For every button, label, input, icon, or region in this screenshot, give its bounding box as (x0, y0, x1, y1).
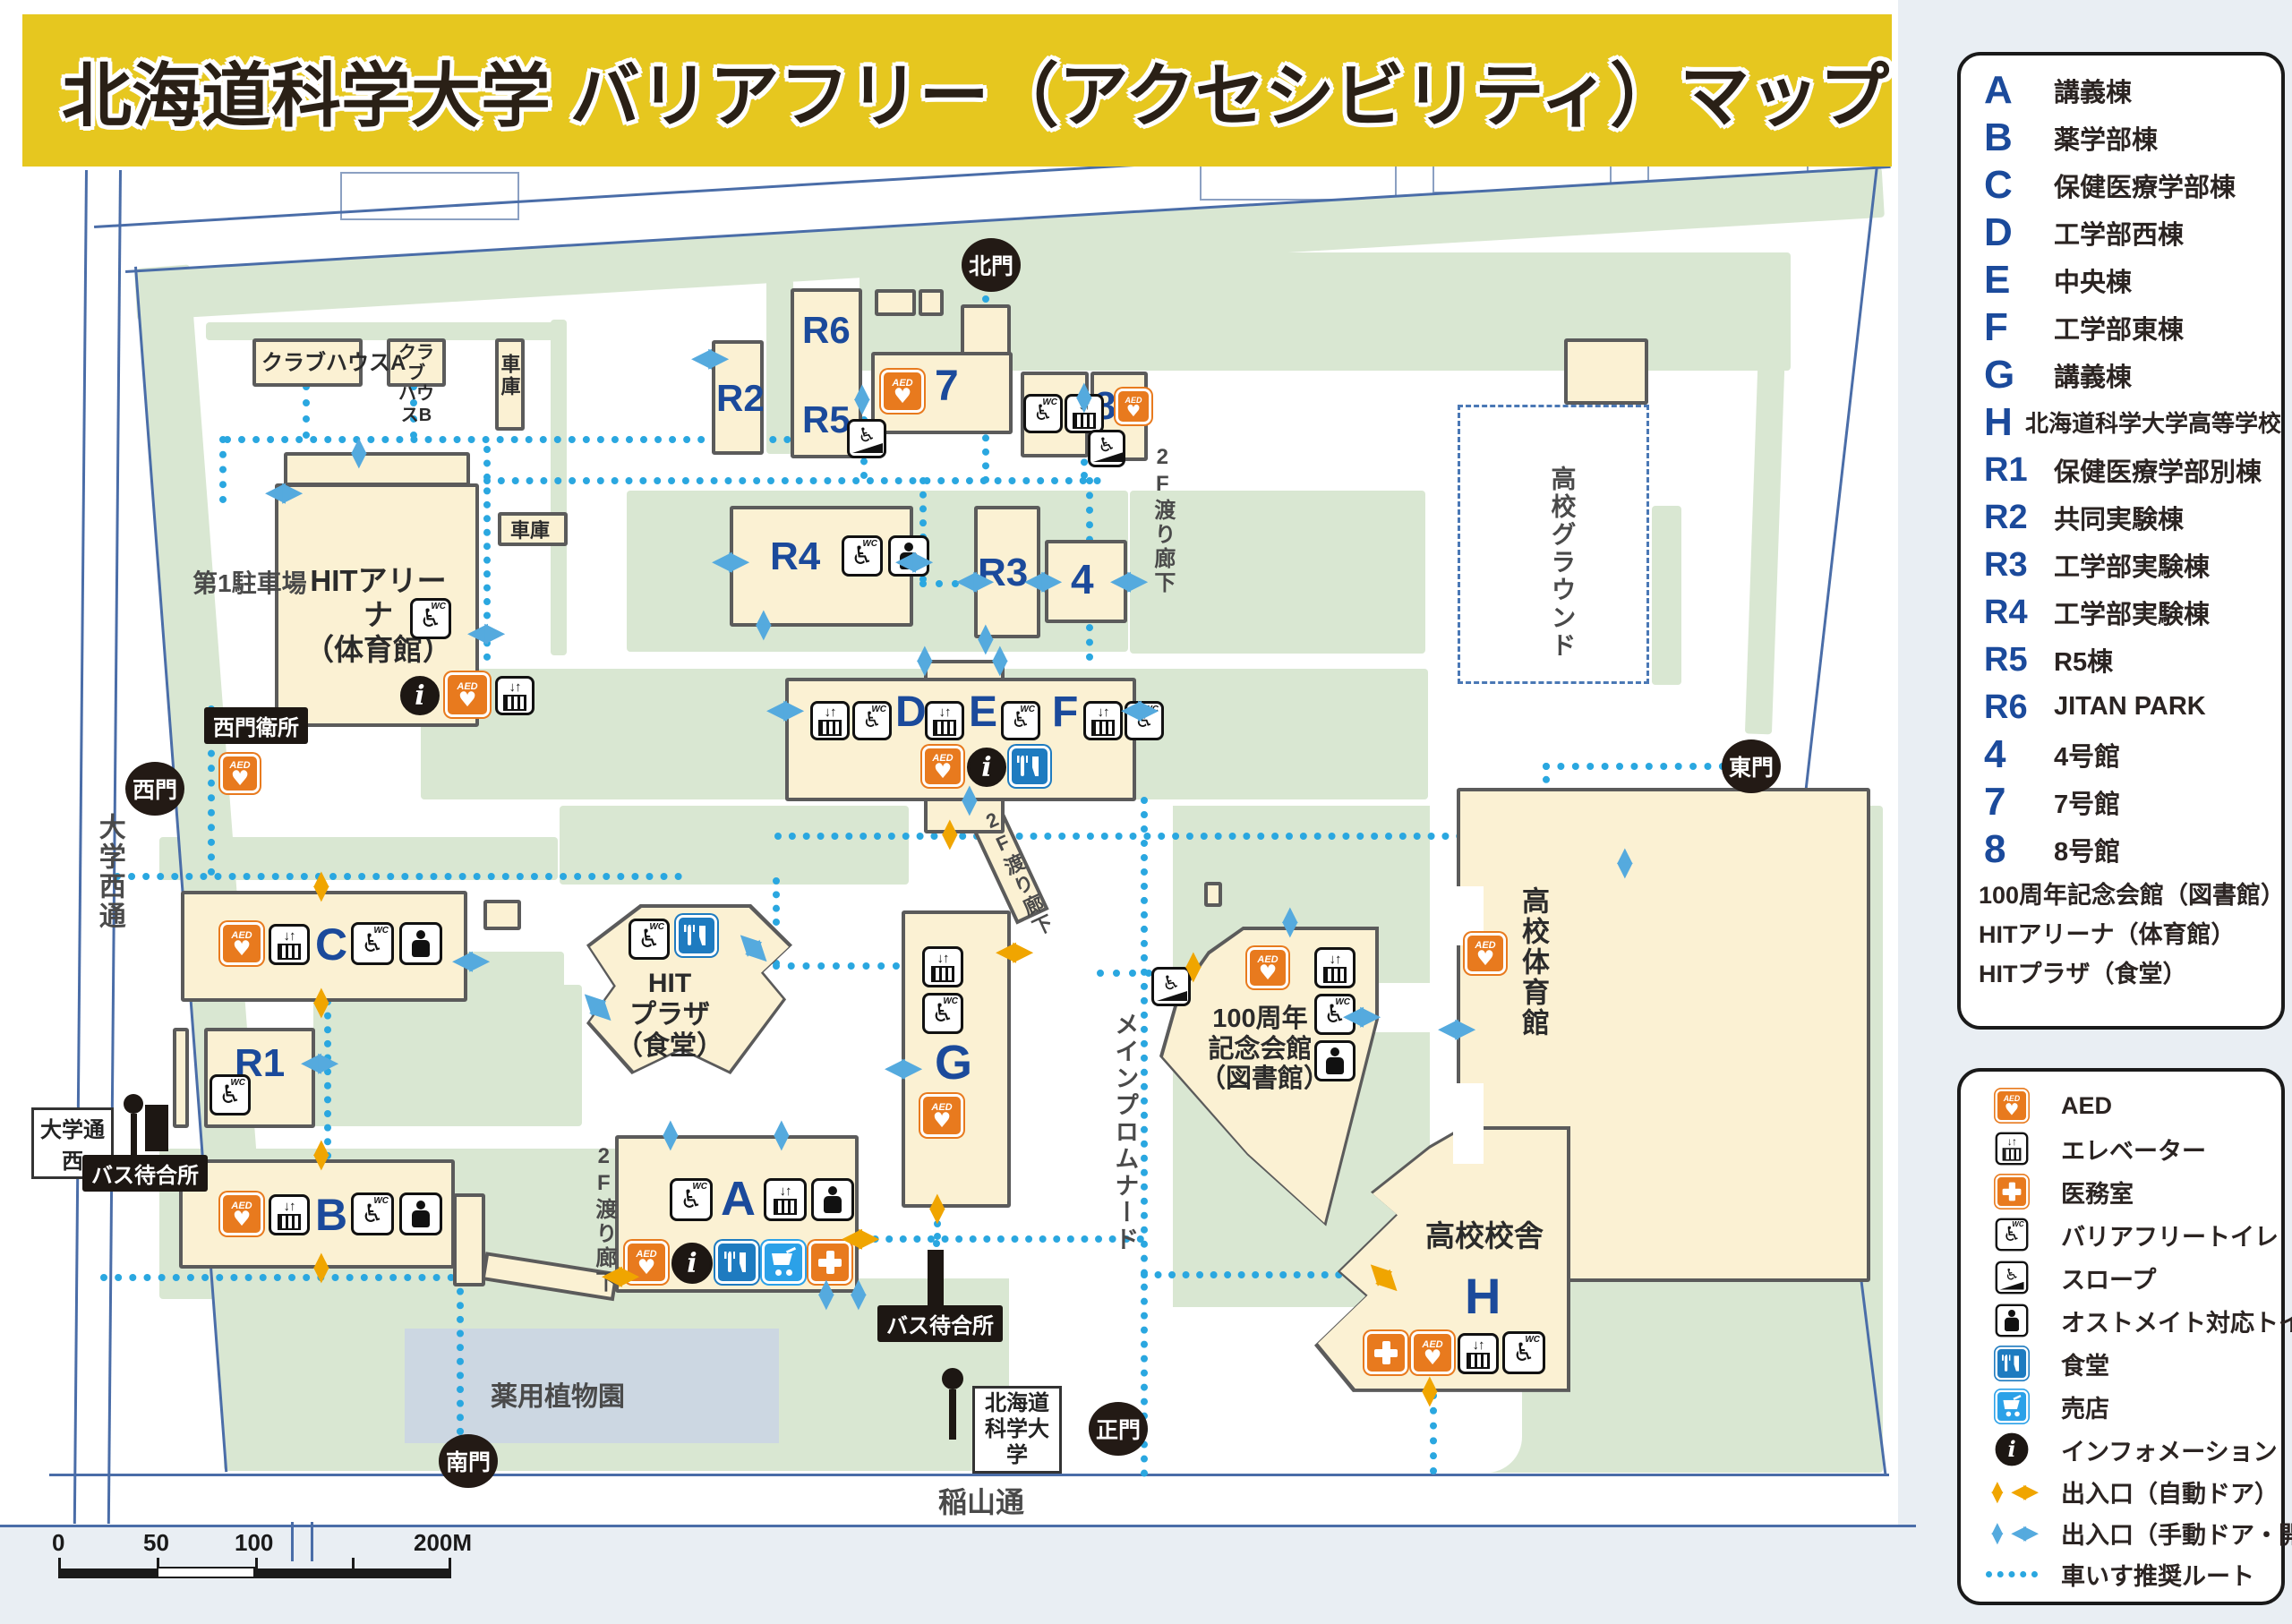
west-road-outer-line (73, 170, 88, 1524)
legend-row: 100周年記念会館（図書館） (1961, 873, 2281, 912)
legend-label: 北海道科学大学高等学校 (2025, 406, 2281, 439)
centennial-line3: （図書館） (1200, 1064, 1330, 1093)
lawn (766, 279, 793, 454)
bus-shelter-tag-west: バス待合所 (82, 1155, 208, 1192)
outside-street-line (291, 1522, 294, 1561)
south-road-top-line (49, 1474, 1889, 1476)
hs-gym-notch (1453, 1083, 1484, 1164)
aed-icon: AED♥ (220, 754, 260, 793)
scale-segment (58, 1568, 157, 1578)
centennial-line1: 100周年 (1212, 1004, 1307, 1033)
entrance-manual: ◀▶ (1438, 1015, 1472, 1042)
accessible-toilet-icon: ♿WC (210, 1074, 251, 1115)
legend-row: B薬学部棟 (1961, 114, 2281, 161)
lawn (313, 985, 582, 1126)
building-g-label: G (935, 1039, 972, 1087)
aed-icon: AED♥ (1996, 1090, 2029, 1123)
building-small (919, 289, 944, 316)
legend-label: 100周年記念会館（図書館） (1979, 876, 2285, 910)
building-small (875, 289, 916, 316)
legend-code: R5 (1984, 643, 2054, 677)
entrance-manual: ◀▶ (712, 548, 746, 575)
legend-row: D工学部西棟 (1961, 209, 2281, 256)
legend-label: 中央棟 (2054, 261, 2132, 299)
entrance-auto: ◀▶ (602, 1262, 636, 1289)
accessible-toilet-icon: ♿WC (1502, 1331, 1545, 1374)
legend-code: G (1984, 355, 2054, 395)
bus-sign-line2: 科学大学 (985, 1417, 1049, 1467)
ostomate-icon (399, 922, 442, 965)
legend-row: R4工学部実験棟 (1961, 588, 2281, 636)
elevator-icon: ↓↑ (764, 1178, 807, 1221)
garage-1-label: 車庫 (498, 354, 521, 398)
legend-row: ▲▼ ◀▶出入口（自動ドア） (1961, 1471, 2281, 1512)
entrance-manual: ▲▼ (911, 646, 938, 674)
legend-label: 売店 (2061, 1389, 2109, 1424)
scale-100: 100 (235, 1529, 273, 1557)
centennial-line2: 記念会館 (1208, 1035, 1312, 1064)
aed-icon: AED♥ (445, 672, 490, 717)
information-icon: i (671, 1243, 713, 1284)
east-road-line-1 (1802, 166, 1878, 810)
legend-row: R5R5棟 (1961, 636, 2281, 683)
entrance-manual: ◀▶ (452, 947, 486, 974)
building-r6-label: R6 (802, 312, 851, 349)
cafeteria-icon (715, 1241, 758, 1284)
gate-south: 南門 (439, 1434, 498, 1488)
outside-block (340, 172, 519, 220)
building-b-wing (453, 1193, 485, 1286)
legend-label: 保健医療学部棟 (2054, 167, 2236, 204)
legend-row: 44号館 (1961, 731, 2281, 778)
entrance-manual: ◀▶ (1024, 568, 1058, 594)
entrance-manual: ◀▶ (301, 1049, 335, 1076)
elevator-icon: ↓↑ (269, 924, 310, 965)
elevator-icon: ↓↑ (269, 1194, 310, 1235)
building-h-label: H (1465, 1271, 1501, 1321)
wheelchair-route (303, 383, 310, 439)
corridor-2f-label: 2F渡り廊下 (1150, 445, 1175, 595)
wheelchair-route (114, 873, 682, 880)
scale-segment (255, 1568, 451, 1578)
legend-code: H (1984, 403, 2025, 442)
aed-icon: AED♥ (1116, 389, 1151, 424)
legend-row: A講義棟 (1961, 66, 2281, 114)
bus-stop-main-sign: 北海道科学大学 (972, 1386, 1062, 1474)
entrance-manual: ◀▶ (1110, 568, 1144, 594)
entrance-manual: ◀▶ (691, 345, 725, 372)
legend-label: HITアリーナ（体育館） (1979, 915, 2236, 950)
legend-row: E中央棟 (1961, 256, 2281, 303)
legend-label: 薬学部棟 (2054, 119, 2158, 157)
univ-west-st-label: 大学西通 (93, 813, 124, 931)
elevator-icon: ↓↑ (1314, 947, 1356, 988)
accessible-toilet-icon: ♿WC (842, 535, 883, 577)
legend-row: AED♥AED (1961, 1084, 2281, 1127)
legend-label: 4号館 (2054, 736, 2120, 774)
aed-icon: AED♥ (881, 370, 924, 413)
wheelchair-route-icon (1980, 1571, 2043, 1577)
bus-stop-pole (949, 1389, 956, 1440)
legend-code: R4 (1984, 595, 2054, 629)
shop-icon (762, 1241, 805, 1284)
scale-segment (157, 1567, 255, 1578)
legend-label: スロープ (2061, 1261, 2156, 1295)
cafeteria-icon (1996, 1347, 2029, 1380)
elevator-icon: ↓↑ (1996, 1133, 2029, 1166)
legend-row: 77号館 (1961, 778, 2281, 825)
promenade-label: メインプロムナード (1110, 1012, 1138, 1253)
legend-label: 講義棟 (2054, 72, 2132, 109)
entrance-manual-icon: ▲▼ ◀▶ (1980, 1521, 2043, 1544)
entrance-manual: ▲▼ (956, 786, 983, 814)
aed-icon: AED♥ (1465, 933, 1506, 974)
entrance-manual: ▲▼ (346, 439, 372, 466)
scale-200: 200M (414, 1529, 472, 1557)
entrance-manual: ◀▶ (265, 479, 299, 506)
lawn (551, 320, 567, 655)
entrance-manual: ▲▼ (845, 1280, 872, 1308)
legend-label: AED (2061, 1092, 2112, 1120)
aed-icon: AED♥ (920, 1094, 963, 1137)
legend-row: 食堂 (1961, 1342, 2281, 1385)
legend-label: JITAN PARK (2054, 692, 2206, 722)
building-c-label: C (315, 922, 347, 967)
west-gate-office-tag: 西門衛所 (204, 707, 308, 744)
building-r4-label: R4 (770, 537, 820, 577)
elevator-icon: ↓↑ (1083, 701, 1123, 740)
legend-code: R3 (1984, 548, 2054, 582)
title-banner: 北海道科学大学 バリアフリー（アクセシビリティ）マップ (22, 14, 1892, 167)
elevator-icon: ↓↑ (925, 701, 964, 740)
clubhouse-b-label: クラブハウスB (392, 343, 440, 426)
elevator-icon: ↓↑ (922, 946, 963, 987)
entrance-auto-icon: ▲▼ ◀▶ (1980, 1480, 2043, 1503)
entrance-manual: ◀▶ (1121, 697, 1155, 723)
clubhouse-a-label: クラブハウスA (261, 351, 406, 376)
entrance-auto: ▲▼ (308, 1141, 335, 1168)
legend-row: 売店 (1961, 1385, 2281, 1428)
entrance-manual: ◀▶ (467, 620, 501, 646)
entrance-auto: ▲▼ (936, 820, 963, 848)
facility-legend-panel: AED♥AED ↓↑エレベーター 医務室 ♿WCバリアフリートイレ ♿スロープ … (1957, 1068, 2285, 1605)
legend-row: iインフォメーション (1961, 1428, 2281, 1471)
accessible-toilet-icon: ♿WC (351, 922, 394, 965)
hit-plaza-line3: （食堂） (616, 1031, 723, 1061)
entrance-manual: ◀▶ (1343, 1003, 1377, 1030)
legend-row: 88号館 (1961, 825, 2281, 873)
entrance-manual: ▲▼ (1612, 849, 1638, 876)
gate-north: 北門 (962, 238, 1021, 292)
parking1-label: 第1駐車場 (192, 569, 307, 598)
slope-icon: ♿ (1088, 430, 1125, 467)
legend-code: F (1984, 308, 2054, 347)
legend-row: ♿WCバリアフリートイレ (1961, 1213, 2281, 1256)
herb-garden-label: 薬用植物園 (491, 1382, 625, 1414)
legend-label: R5棟 (2054, 641, 2113, 679)
ostomate-icon (811, 1178, 854, 1221)
legend-label: 7号館 (2054, 783, 2120, 821)
wheelchair-route (1543, 763, 1726, 770)
legend-row: 車いす推奨ルート (1961, 1553, 2281, 1594)
building-b-label: B (315, 1192, 347, 1237)
legend-row: G講義棟 (1961, 351, 2281, 398)
legend-row: R1保健医療学部別棟 (1961, 446, 2281, 493)
elevator-icon: ↓↑ (495, 676, 535, 715)
entrance-manual: ▲▼ (849, 385, 876, 413)
information-icon: i (400, 676, 440, 715)
legend-row: ▲▼ ◀▶出入口（手動ドア・開き戸） (1961, 1512, 2281, 1553)
entrance-auto: ▲▼ (308, 872, 335, 900)
legend-code: R6 (1984, 690, 2054, 724)
legend-label: 出入口（自動ドア） (2061, 1474, 2279, 1509)
entrance-manual: ▲▼ (1071, 383, 1098, 411)
legend-label: 車いす推奨ルート (2061, 1557, 2254, 1592)
ostomate-icon (1996, 1304, 2029, 1338)
hit-plaza-label: HITプラザ（食堂） (607, 969, 732, 1062)
entrance-manual: ◀▶ (956, 568, 990, 594)
slope-icon: ♿ (1996, 1261, 2029, 1295)
wheelchair-route (773, 962, 900, 970)
elevator-icon: ↓↑ (1458, 1333, 1499, 1374)
campus-map: 高校グラウンド クラブハウスA クラブハウスB 車庫 車庫 HITアリーナ（体育… (0, 0, 2292, 1624)
legend-label: オストメイト対応トイレ (2061, 1303, 2292, 1338)
shop-icon (1996, 1390, 2029, 1423)
entrance-manual: ▲▼ (657, 1121, 684, 1149)
entrance-auto: ◀▶ (842, 1225, 876, 1252)
legend-row: ♿スロープ (1961, 1256, 2281, 1299)
bus-shelter-tag-main: バス待合所 (877, 1305, 1003, 1342)
accessible-toilet-icon: ♿WC (629, 919, 670, 960)
building-r5-label: R5 (802, 401, 851, 439)
legend-row: R2共同実験棟 (1961, 493, 2281, 541)
building-e-label: E (969, 691, 997, 734)
entrance-auto: ◀▶ (996, 938, 1030, 965)
south-st-label: 稲山通 (938, 1486, 1024, 1519)
legend-row: H北海道科学大学高等学校 (1961, 398, 2281, 446)
building-r2-label: R2 (716, 380, 765, 417)
infirmary-icon (1996, 1175, 2029, 1209)
legend-code: 8 (1984, 830, 2054, 869)
legend-row: HITプラザ（食堂） (1961, 952, 2281, 991)
legend-code: R1 (1984, 453, 2054, 487)
accessible-toilet-icon: ♿WC (410, 598, 451, 639)
legend-code: 7 (1984, 782, 2054, 822)
ostomate-icon (1314, 1040, 1356, 1081)
wheelchair-route (457, 1274, 464, 1435)
building-4-label: 4 (1071, 559, 1094, 600)
centennial-label: 100周年記念会館（図書館） (1200, 1004, 1321, 1095)
legend-label: エレベーター (2061, 1132, 2206, 1167)
building-a-label: A (721, 1175, 756, 1223)
clubhouse-b-line2: ハウスB (398, 384, 434, 424)
entrance-manual: ▲▼ (813, 1280, 840, 1308)
legend-row: ↓↑エレベーター (1961, 1127, 2281, 1170)
infirmary-icon (1364, 1331, 1407, 1374)
legend-row: R3工学部実験棟 (1961, 541, 2281, 588)
building-r1-annex (173, 1028, 189, 1128)
lawn (1652, 506, 1681, 685)
hs-ground-label: 高校グラウンド (1547, 466, 1576, 660)
entrance-auto: ▲▼ (308, 988, 335, 1016)
legend-code: B (1984, 118, 2054, 158)
building-small (1204, 882, 1222, 907)
scale-50: 50 (143, 1529, 169, 1557)
entrance-auto: ▲▼ (1416, 1377, 1443, 1405)
hit-plaza-line2: プラザ (629, 1000, 710, 1030)
building-legend-panel: A講義棟 B薬学部棟 C保健医療学部棟 D工学部西棟 E中央棟 F工学部東棟 G… (1957, 52, 2285, 1030)
aed-icon: AED♥ (220, 922, 263, 965)
entrance-manual: ▲▼ (768, 1121, 795, 1149)
gate-west: 西門 (125, 762, 184, 816)
legend-label: 工学部西棟 (2054, 214, 2184, 252)
page-title: 北海道科学大学 バリアフリー（アクセシビリティ）マップ (62, 40, 1889, 141)
legend-code: D (1984, 213, 2054, 252)
legend-row: オストメイト対応トイレ (1961, 1299, 2281, 1342)
bus-shelter-block (928, 1250, 944, 1305)
entrance-auto: ▲▼ (308, 1253, 335, 1281)
scale-0: 0 (52, 1529, 64, 1557)
legend-label: 食堂 (2061, 1346, 2109, 1381)
gate-main: 正門 (1089, 1402, 1148, 1456)
accessible-toilet-icon: ♿WC (670, 1178, 713, 1221)
bus-stop-pole-head (942, 1368, 963, 1389)
wheelchair-route (483, 477, 1101, 484)
building-small (1564, 338, 1648, 405)
entrance-manual: ◀▶ (885, 1055, 919, 1081)
cafeteria-icon (1009, 746, 1050, 787)
hs-school-label: 高校校舎 (1425, 1219, 1544, 1253)
wheelchair-route (1141, 797, 1148, 1477)
aed-icon: AED♥ (1247, 947, 1288, 988)
accessible-toilet-icon: ♿WC (852, 701, 892, 740)
legend-code: R2 (1984, 500, 2054, 534)
ostomate-icon (399, 1192, 442, 1235)
legend-row: F工学部東棟 (1961, 303, 2281, 351)
legend-code: 4 (1984, 735, 2054, 774)
entrance-manual: ▲▼ (750, 611, 777, 638)
elevator-icon: ↓↑ (810, 701, 850, 740)
bus-stop-pole-head (124, 1094, 143, 1114)
entrance-manual: ◀▶ (895, 548, 929, 575)
cafeteria-icon (676, 915, 717, 956)
lawn (206, 322, 555, 340)
legend-label: 出入口（手動ドア・開き戸） (2061, 1516, 2292, 1551)
lawn (1013, 306, 1090, 351)
building-7-label: 7 (935, 365, 959, 408)
legend-label: 工学部東棟 (2054, 309, 2184, 346)
garage-2-label: 車庫 (510, 519, 550, 543)
building-small (483, 900, 521, 930)
building-hit-arena-bar (284, 452, 470, 486)
accessible-toilet-icon: ♿WC (922, 993, 963, 1034)
wheelchair-route (1097, 970, 1152, 977)
accessible-toilet-icon: ♿WC (351, 1192, 394, 1235)
entrance-manual: ▲▼ (1277, 908, 1304, 936)
entrance-manual: ▲▼ (987, 646, 1013, 674)
south-road-bottom-line (0, 1525, 1916, 1527)
legend-row: C保健医療学部棟 (1961, 161, 2281, 209)
legend-label: バリアフリートイレ (2061, 1218, 2279, 1252)
legend-label: 工学部実験棟 (2054, 594, 2210, 631)
entrance-auto: ▲▼ (1180, 953, 1207, 980)
aed-icon: AED♥ (1411, 1331, 1454, 1374)
legend-label: 保健医療学部別棟 (2054, 451, 2262, 489)
wheelchair-route (774, 833, 1549, 840)
legend-label: 工学部実験棟 (2054, 546, 2210, 584)
hit-plaza-line1: HIT (648, 969, 691, 998)
information-icon: i (1996, 1433, 2029, 1466)
wheelchair-route (858, 1235, 1144, 1243)
legend-label: HITプラザ（食堂） (1979, 954, 2187, 989)
legend-row: R6JITAN PARK (1961, 683, 2281, 731)
bus-sign-line1: 北海道 (985, 1391, 1049, 1415)
accessible-toilet-icon: ♿WC (1023, 394, 1063, 433)
legend-row: 医務室 (1961, 1170, 2281, 1213)
legend-label: インフォメーション (2061, 1432, 2278, 1467)
slope-icon: ♿ (847, 419, 886, 458)
outside-street-line (311, 1522, 313, 1561)
legend-code: A (1984, 71, 2054, 110)
legend-label: 講義棟 (2054, 356, 2132, 394)
legend-label: 共同実験棟 (2054, 499, 2184, 536)
wheelchair-route (219, 436, 227, 503)
bus-stop-pole (131, 1114, 137, 1155)
entrance-auto: ▲▼ (924, 1194, 951, 1222)
accessible-toilet-icon: ♿WC (1001, 701, 1040, 740)
building-f-label: F (1052, 691, 1078, 734)
legend-label: 医務室 (2061, 1175, 2134, 1209)
legend-label: 8号館 (2054, 831, 2120, 868)
accessible-toilet-icon: ♿WC (1996, 1218, 2029, 1252)
gate-east: 東門 (1722, 739, 1781, 793)
hs-gym-label: 高校体育館 (1517, 886, 1549, 1039)
entrance-manual: ◀▶ (766, 697, 800, 723)
legend-code: C (1984, 166, 2054, 205)
aed-icon: AED♥ (220, 1192, 263, 1235)
legend-code: E (1984, 261, 2054, 300)
wheelchair-route (224, 436, 877, 443)
building-d-label: D (895, 691, 927, 734)
clubhouse-b-line1: クラブ (398, 343, 434, 383)
bus-shelter-block (145, 1105, 168, 1151)
building-7-annex (961, 304, 1011, 356)
legend-row: HITアリーナ（体育館） (1961, 912, 2281, 952)
